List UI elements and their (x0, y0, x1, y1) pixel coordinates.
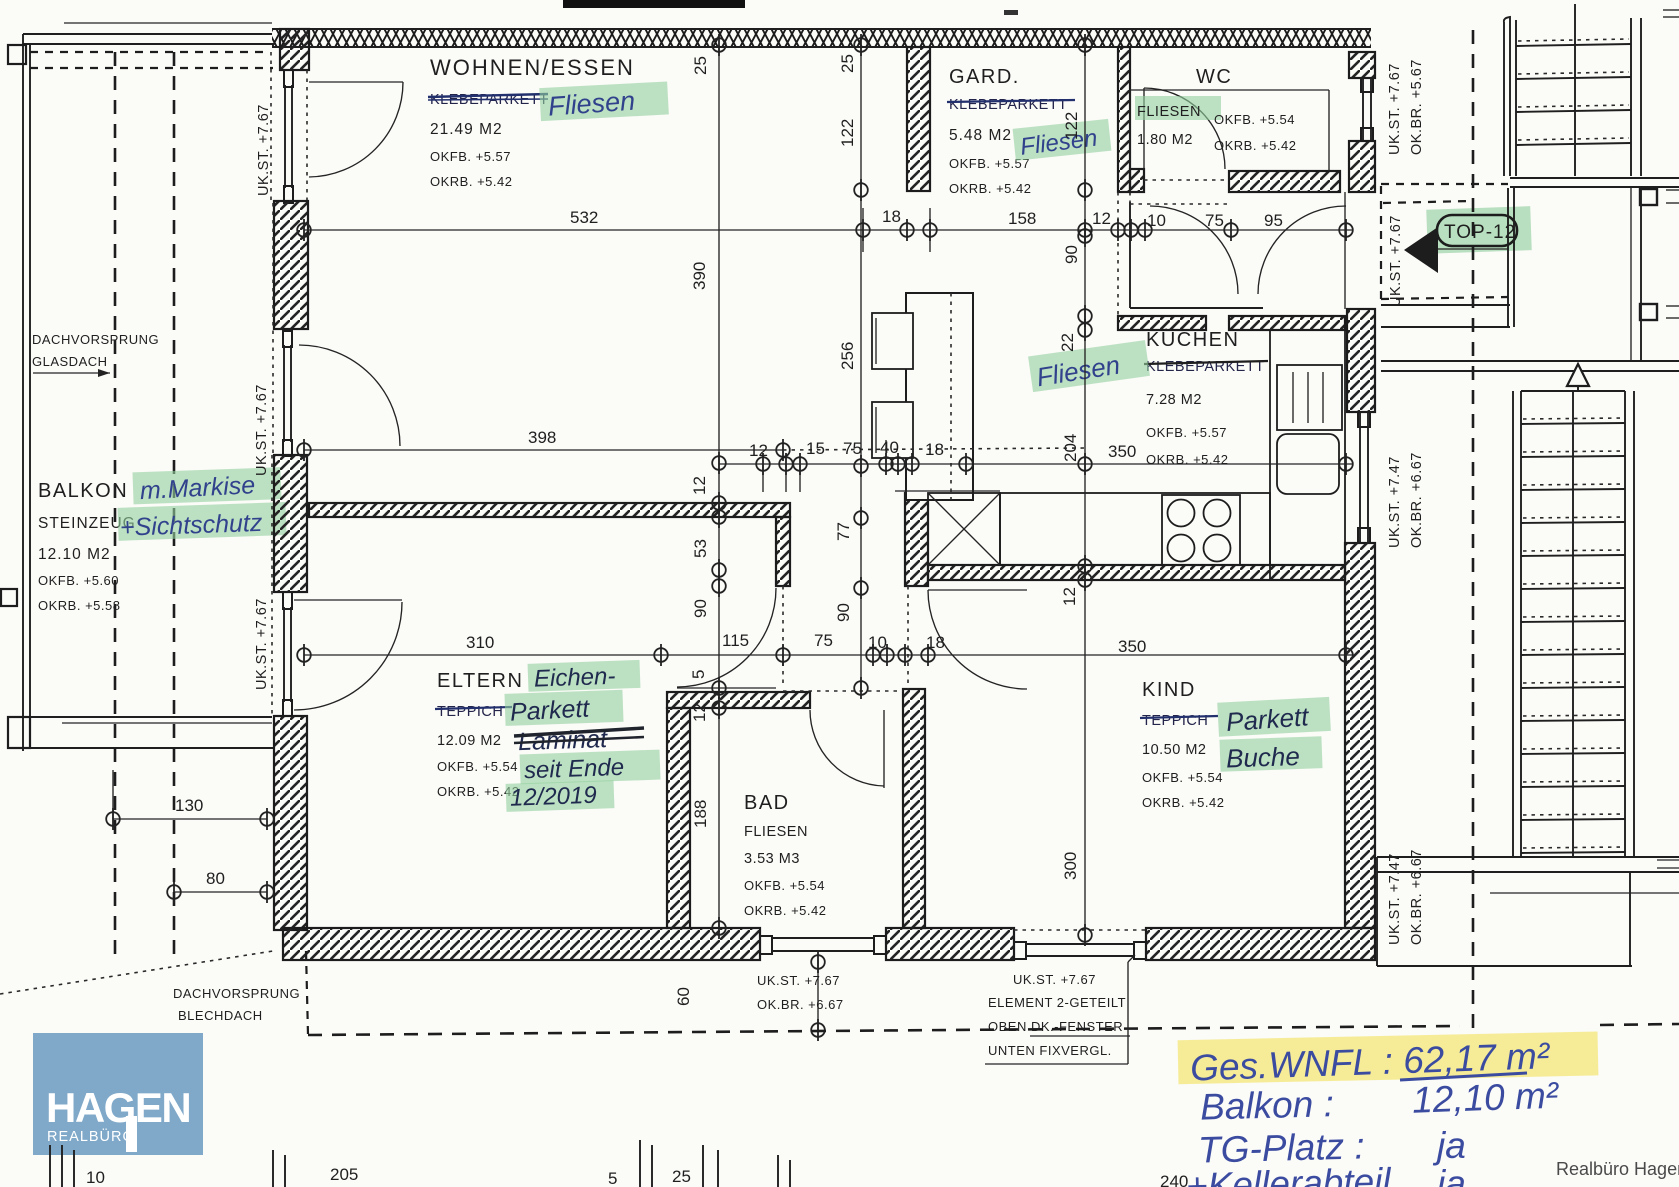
svg-text:GLASDACH: GLASDACH (32, 354, 108, 369)
svg-text:310: 310 (466, 633, 494, 652)
svg-text:OKFB. +5.54: OKFB. +5.54 (1142, 770, 1223, 785)
svg-text:WC: WC (1196, 66, 1232, 88)
svg-text:12/2019: 12/2019 (510, 782, 598, 812)
svg-text:OKFB. +5.54: OKFB. +5.54 (437, 759, 518, 774)
svg-text:UK.ST. +7.47: UK.ST. +7.47 (1387, 456, 1403, 548)
svg-text:300: 300 (1061, 852, 1080, 880)
svg-text:Parkett: Parkett (509, 694, 591, 726)
svg-text:12: 12 (690, 703, 709, 722)
svg-text:ELTERN: ELTERN (437, 670, 523, 692)
svg-text:398: 398 (528, 428, 556, 447)
svg-text:DACHVORSPRUNG: DACHVORSPRUNG (173, 986, 300, 1001)
svg-text:OK.BR. +6.67: OK.BR. +6.67 (1409, 452, 1425, 548)
svg-text:OKRB. +5.42: OKRB. +5.42 (1214, 138, 1296, 153)
svg-text:122: 122 (838, 119, 857, 147)
svg-text:12: 12 (1092, 209, 1111, 228)
svg-text:53: 53 (691, 539, 710, 558)
svg-text:240: 240 (1160, 1172, 1188, 1187)
svg-text:REALBÜRO: REALBÜRO (47, 1127, 135, 1145)
svg-text:OK.BR. +6.67: OK.BR. +6.67 (757, 997, 844, 1012)
svg-text:40: 40 (880, 438, 899, 457)
svg-text:158: 158 (1008, 209, 1036, 228)
svg-text:25: 25 (838, 54, 857, 73)
svg-text:BAD: BAD (744, 792, 790, 814)
svg-text:Eichen-: Eichen- (534, 663, 616, 693)
svg-text:75: 75 (843, 439, 862, 458)
svg-text:OKFB. +5.57: OKFB. +5.57 (1146, 425, 1227, 440)
svg-text:BLECHDACH: BLECHDACH (178, 1008, 263, 1023)
svg-text:OKRB. +5.42: OKRB. +5.42 (430, 174, 512, 189)
svg-text:KÜCHEN: KÜCHEN (1146, 329, 1239, 351)
svg-text:OBEN DK.-FENSTER: OBEN DK.-FENSTER (988, 1019, 1123, 1034)
svg-text:OKRB. +5.42: OKRB. +5.42 (1146, 452, 1228, 467)
svg-text:75: 75 (1205, 211, 1224, 230)
svg-text:10: 10 (86, 1168, 105, 1187)
svg-text:seit Ende: seit Ende (524, 754, 625, 784)
svg-text:OKRB. +5.58: OKRB. +5.58 (38, 598, 120, 613)
svg-text:390: 390 (690, 262, 709, 290)
svg-text:UNTEN FIXVERGL.: UNTEN FIXVERGL. (988, 1043, 1112, 1058)
svg-text:OK.BR. +5.67: OK.BR. +5.67 (1409, 59, 1425, 155)
svg-text:UK.ST. +7.67: UK.ST. +7.67 (254, 384, 270, 476)
svg-text:5.48 M2: 5.48 M2 (949, 127, 1012, 144)
svg-text:OKRB. +5.42: OKRB. +5.42 (949, 181, 1031, 196)
svg-text:10: 10 (868, 633, 887, 652)
svg-text:Balkon :: Balkon : (1200, 1083, 1335, 1127)
svg-text:90: 90 (834, 603, 853, 622)
svg-text:UK.ST. +7.67: UK.ST. +7.67 (1013, 972, 1096, 987)
svg-text:OKRB. +5.42: OKRB. +5.42 (744, 903, 826, 918)
svg-text:UK.ST. +7.67: UK.ST. +7.67 (1388, 215, 1404, 307)
svg-text:205: 205 (330, 1165, 358, 1184)
svg-text:ja: ja (1432, 1163, 1466, 1187)
svg-text:350: 350 (1108, 442, 1136, 461)
svg-text:25: 25 (691, 56, 710, 75)
svg-text:18: 18 (882, 207, 901, 226)
svg-text:80: 80 (206, 869, 225, 888)
svg-text:115: 115 (722, 631, 749, 650)
svg-text:12.10 M2: 12.10 M2 (38, 546, 111, 563)
svg-text:22: 22 (1058, 333, 1077, 352)
svg-text:3.53 M3: 3.53 M3 (744, 851, 800, 867)
svg-text:ja: ja (1432, 1125, 1466, 1166)
svg-text:Fliesen: Fliesen (547, 86, 636, 122)
svg-text:UK.ST. +7.67: UK.ST. +7.67 (254, 598, 270, 690)
svg-text:7.28 M2: 7.28 M2 (1146, 392, 1202, 408)
svg-text:BALKON: BALKON (38, 480, 128, 502)
svg-text:21.49 M2: 21.49 M2 (430, 121, 503, 138)
svg-text:10.50 M2: 10.50 M2 (1142, 742, 1206, 758)
svg-text:15: 15 (806, 439, 825, 458)
svg-text:OKFB. +5.57: OKFB. +5.57 (430, 149, 511, 164)
svg-text:188: 188 (691, 800, 710, 828)
svg-text:FLIESEN: FLIESEN (1137, 104, 1201, 120)
svg-text:WOHNEN/ESSEN: WOHNEN/ESSEN (430, 55, 635, 80)
svg-text:5: 5 (608, 1169, 617, 1187)
svg-text:95: 95 (1264, 211, 1283, 230)
svg-text:77: 77 (834, 522, 853, 541)
svg-text:Buche: Buche (1226, 741, 1301, 774)
svg-text:FLIESEN: FLIESEN (744, 824, 808, 840)
svg-text:12,10 m²: 12,10 m² (1411, 1075, 1560, 1121)
svg-text:60: 60 (674, 987, 693, 1006)
svg-text:Realbüro Hagen: Realbüro Hagen (1556, 1159, 1679, 1179)
svg-text:OKRB. +5.42: OKRB. +5.42 (1142, 795, 1224, 810)
svg-text:TOP-12: TOP-12 (1444, 222, 1516, 243)
svg-text:Parkett: Parkett (1225, 701, 1311, 737)
svg-text:256: 256 (838, 342, 857, 370)
svg-text:532: 532 (570, 208, 598, 227)
svg-text:DACHVORSPRUNG: DACHVORSPRUNG (32, 332, 159, 347)
svg-text:350: 350 (1118, 637, 1146, 656)
svg-text:75: 75 (814, 631, 833, 650)
svg-text:OKFB. +5.54: OKFB. +5.54 (1214, 112, 1295, 127)
svg-text:HAGEN: HAGEN (46, 1084, 190, 1131)
svg-text:TEPPICH: TEPPICH (1142, 713, 1208, 729)
svg-text:12: 12 (1060, 587, 1079, 606)
svg-text:18: 18 (925, 440, 944, 459)
svg-text:12.09 M2: 12.09 M2 (437, 733, 501, 749)
svg-text:130: 130 (175, 796, 203, 815)
svg-text:UK.ST. +7.67: UK.ST. +7.67 (1387, 63, 1403, 155)
svg-text:+Kellerabteil: +Kellerabteil (1185, 1161, 1392, 1187)
svg-text:OKFB. +5.54: OKFB. +5.54 (744, 878, 825, 893)
svg-text:25: 25 (672, 1167, 691, 1186)
svg-text:OKFB. +5.60: OKFB. +5.60 (38, 573, 119, 588)
svg-text:UK.ST. +7.67: UK.ST. +7.67 (256, 104, 272, 196)
svg-text:+Sichtschutz: +Sichtschutz (119, 509, 263, 542)
svg-text:1.80 M2: 1.80 M2 (1137, 132, 1193, 148)
svg-text:UK.ST. +7.67: UK.ST. +7.67 (757, 973, 840, 988)
svg-text:90: 90 (1062, 245, 1081, 264)
svg-text:KIND: KIND (1142, 679, 1196, 701)
svg-text:12: 12 (749, 441, 768, 460)
svg-text:10: 10 (1147, 211, 1166, 230)
svg-text:5: 5 (689, 670, 708, 679)
svg-text:UK.ST. +7.47: UK.ST. +7.47 (1387, 853, 1403, 945)
svg-text:18: 18 (926, 633, 945, 652)
svg-text:OK.BR. +6.67: OK.BR. +6.67 (1409, 849, 1425, 945)
svg-text:12: 12 (690, 476, 709, 495)
svg-text:122: 122 (1062, 112, 1081, 140)
svg-text:90: 90 (691, 599, 710, 618)
svg-text:GARD.: GARD. (949, 66, 1020, 88)
svg-text:ELEMENT 2-GETEILT: ELEMENT 2-GETEILT (988, 995, 1126, 1010)
svg-text:204: 204 (1061, 434, 1080, 462)
